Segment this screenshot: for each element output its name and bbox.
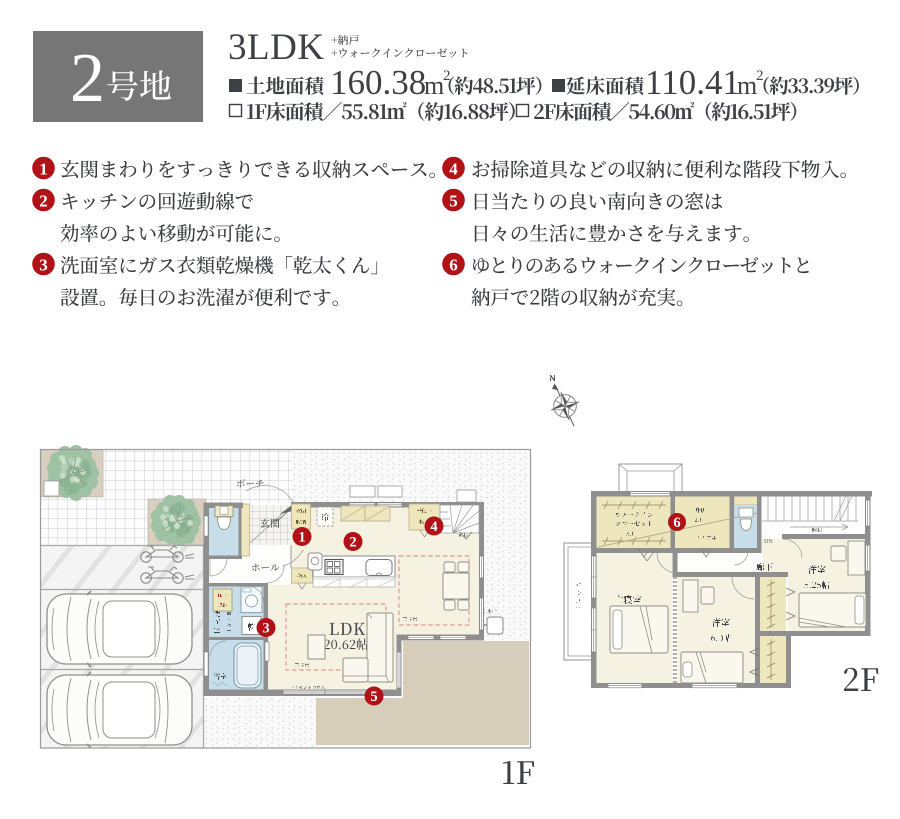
svg-text:2: 2: [756, 68, 764, 84]
svg-text:4: 4: [449, 160, 458, 179]
svg-text:6: 6: [449, 256, 458, 275]
svg-text:1: 1: [39, 160, 48, 179]
svg-text:2: 2: [39, 192, 48, 211]
svg-text:6: 6: [673, 515, 680, 531]
svg-text:2: 2: [349, 535, 356, 551]
svg-text:m: m: [424, 71, 444, 100]
svg-text:3: 3: [262, 621, 269, 637]
svg-text:160.38: 160.38: [330, 63, 426, 102]
svg-text:4: 4: [430, 519, 437, 535]
svg-text:5: 5: [449, 192, 458, 211]
svg-text:110.41: 110.41: [645, 63, 740, 102]
svg-text:5: 5: [370, 689, 377, 705]
svg-text:3LDK: 3LDK: [228, 27, 325, 68]
svg-text:1: 1: [298, 530, 305, 546]
svg-text:m: m: [737, 71, 757, 100]
svg-text:DN: DN: [764, 539, 773, 545]
svg-text:3: 3: [39, 256, 48, 275]
svg-text:2: 2: [70, 40, 105, 117]
